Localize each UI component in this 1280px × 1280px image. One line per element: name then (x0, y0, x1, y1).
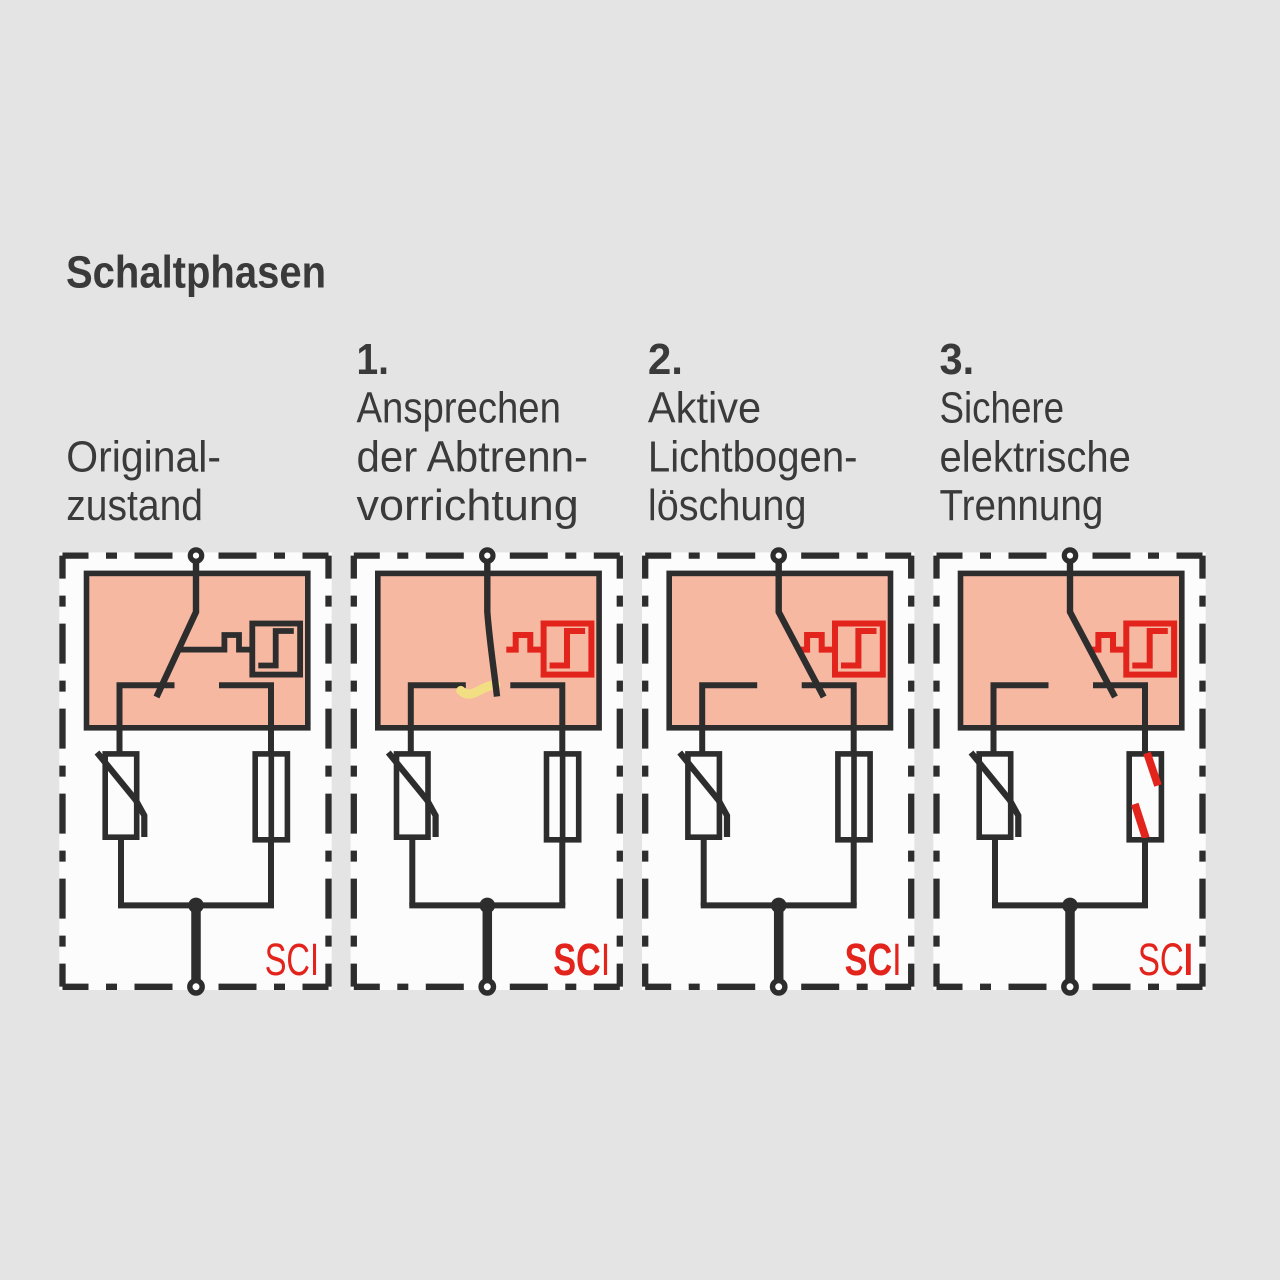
svg-text:Lichtbogen-: Lichtbogen- (648, 432, 858, 481)
svg-text:Original-: Original- (66, 432, 221, 481)
svg-text:Aktive: Aktive (648, 383, 761, 432)
svg-text:SCI: SCI (553, 936, 610, 986)
svg-text:Trennung: Trennung (940, 481, 1104, 530)
svg-text:zustand: zustand (66, 481, 203, 530)
svg-text:vorrichtung: vorrichtung (357, 481, 579, 530)
svg-text:Ansprechen: Ansprechen (357, 383, 561, 432)
svg-text:2.: 2. (648, 335, 683, 384)
svg-text:SCI: SCI (845, 936, 902, 986)
svg-text:SCI: SCI (1138, 935, 1193, 985)
svg-text:löschung: löschung (648, 481, 807, 530)
svg-text:3.: 3. (940, 335, 975, 384)
svg-text:der Abtrenn-: der Abtrenn- (357, 432, 589, 481)
svg-text:elektrische: elektrische (940, 432, 1131, 481)
svg-text:1.: 1. (357, 335, 390, 384)
svg-text:Schaltphasen: Schaltphasen (66, 247, 326, 298)
svg-text:SCI: SCI (265, 935, 319, 985)
svg-text:Sichere: Sichere (940, 383, 1065, 432)
